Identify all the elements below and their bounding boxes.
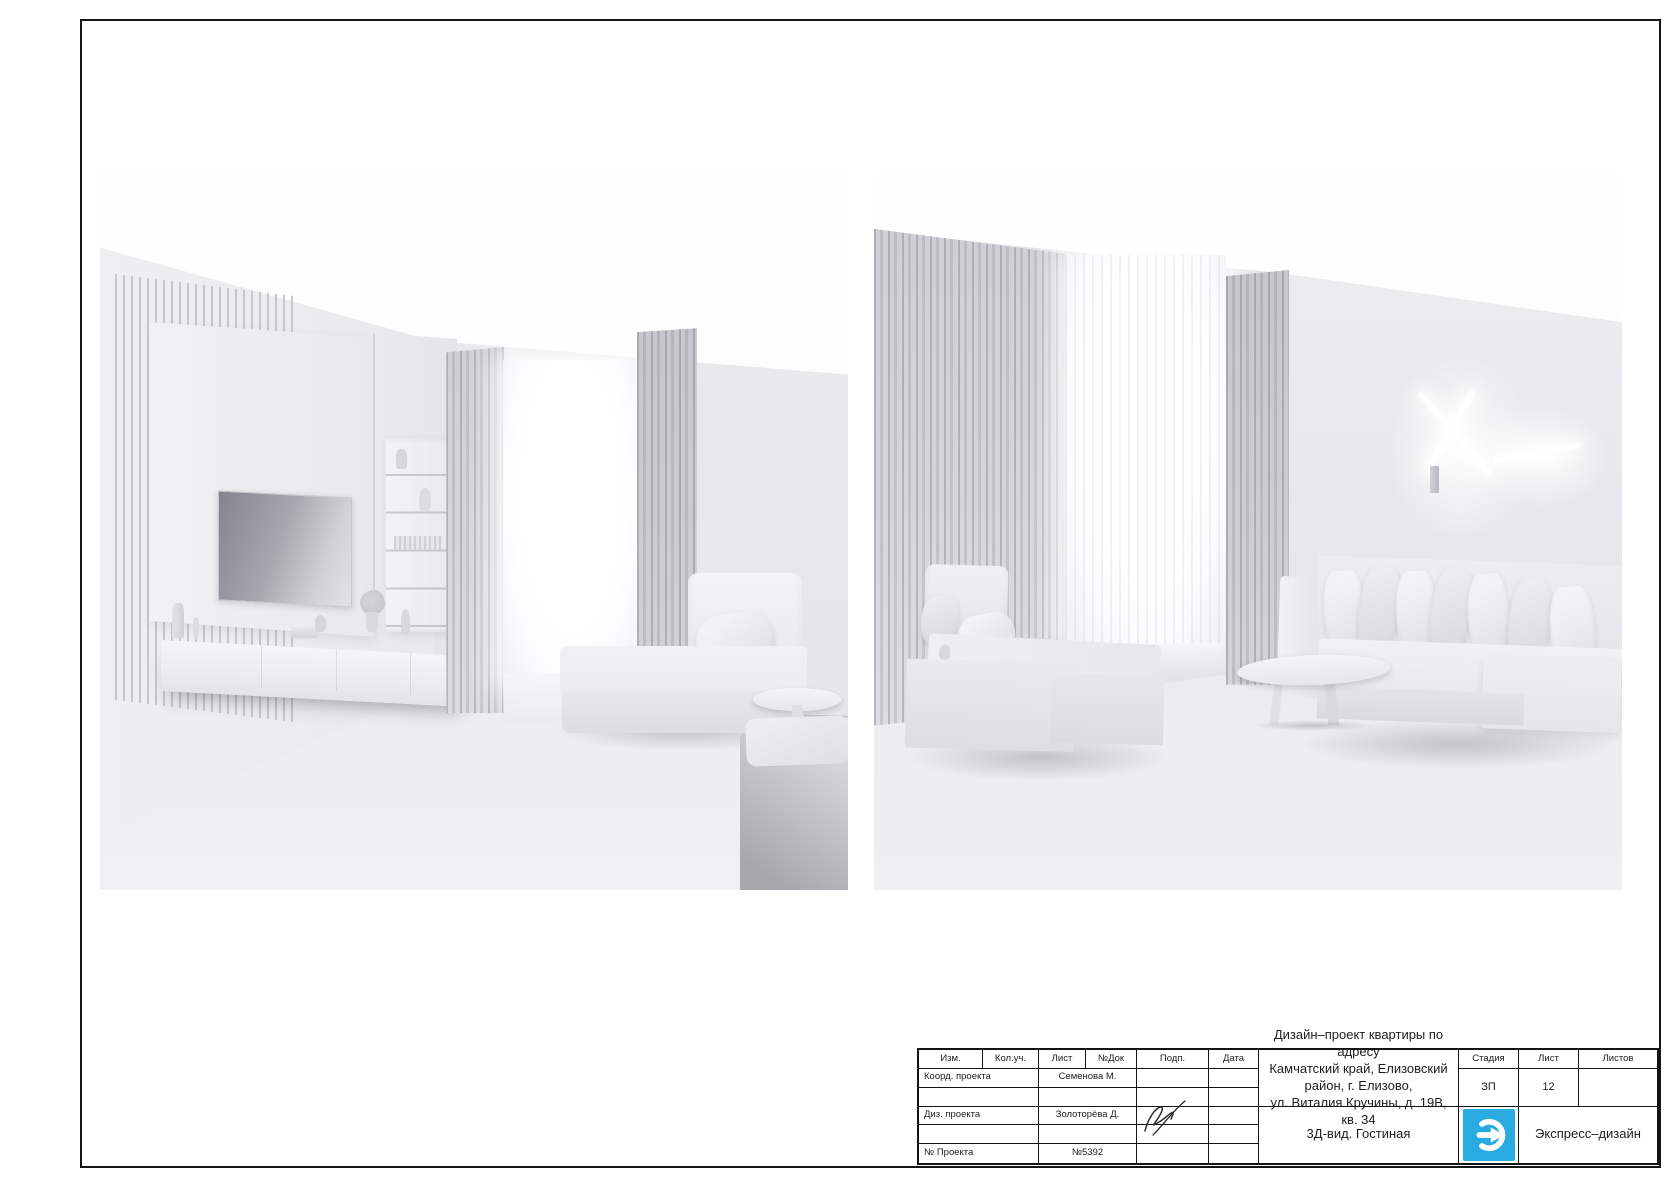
coffee-table-leg bbox=[1323, 680, 1338, 725]
decor-vase bbox=[172, 603, 184, 637]
empty-cell bbox=[1137, 1069, 1209, 1088]
shelf-vase bbox=[419, 488, 432, 510]
view-title: 3Д-вид. Гостиная bbox=[1259, 1107, 1459, 1164]
project-number-value: №5392 bbox=[1039, 1144, 1137, 1163]
empty-cell bbox=[1137, 1144, 1209, 1163]
coffee-table-leg bbox=[1269, 679, 1284, 725]
empty-cell bbox=[1209, 1144, 1259, 1163]
logo-cell bbox=[1459, 1107, 1519, 1164]
empty-cell bbox=[1209, 1069, 1259, 1088]
stage-value: ЗП bbox=[1459, 1069, 1519, 1107]
empty-cell bbox=[1039, 1125, 1137, 1144]
decor-books bbox=[291, 627, 318, 638]
role-label-coord: Коорд. проекта bbox=[919, 1069, 1039, 1088]
console-seam bbox=[261, 646, 262, 688]
decor-figurine bbox=[315, 615, 326, 632]
signature-cell bbox=[1137, 1107, 1209, 1126]
empty-cell bbox=[1209, 1125, 1259, 1144]
decor-candle bbox=[193, 617, 199, 639]
project-title-line2: Камчатский край, Елизовский район, г. Ел… bbox=[1261, 1061, 1456, 1095]
wall-light-bracket bbox=[1430, 466, 1439, 492]
sheet-value: 12 bbox=[1519, 1069, 1579, 1107]
shelf-vase bbox=[396, 449, 406, 468]
header-list: Лист bbox=[1039, 1050, 1086, 1069]
sheet-header: Лист bbox=[1519, 1050, 1579, 1069]
company-logo-icon bbox=[1467, 1113, 1511, 1157]
company-logo bbox=[1463, 1109, 1515, 1161]
chaise-lounge bbox=[901, 562, 1175, 763]
header-podp: Подп. bbox=[1137, 1050, 1209, 1069]
empty-cell bbox=[1209, 1088, 1259, 1107]
render-3d-right bbox=[874, 143, 1622, 890]
console-seam bbox=[336, 649, 337, 691]
project-title: Дизайн–проект квартиры по адресу Камчатс… bbox=[1259, 1050, 1459, 1107]
empty-cell bbox=[919, 1125, 1039, 1144]
header-ndok: №Док bbox=[1086, 1050, 1137, 1069]
decor-vase bbox=[366, 612, 378, 631]
coffee-table bbox=[1237, 655, 1390, 730]
render-3d-left bbox=[100, 143, 848, 890]
role-name-coord: Семенова М. bbox=[1039, 1069, 1137, 1088]
stage-header: Стадия bbox=[1459, 1050, 1519, 1069]
empty-cell bbox=[1209, 1107, 1259, 1126]
shelf-books bbox=[394, 536, 442, 549]
role-label-designer: Диз. проекта bbox=[919, 1107, 1039, 1126]
curtain-left bbox=[446, 347, 504, 713]
company-name: Экспресс–дизайн bbox=[1519, 1107, 1657, 1164]
empty-cell bbox=[1137, 1125, 1209, 1144]
decor-vase bbox=[401, 609, 411, 634]
header-izm: Изм. bbox=[919, 1050, 983, 1069]
coffee-table-shadow bbox=[1249, 720, 1378, 730]
sheets-value bbox=[1579, 1069, 1657, 1107]
title-block: Изм. Кол.уч. Лист №Док Подп. Дата Дизайн… bbox=[917, 1048, 1659, 1165]
empty-cell bbox=[919, 1088, 1039, 1107]
wall-light-glow bbox=[1469, 404, 1611, 509]
role-name-designer: Золоторёва Д. bbox=[1039, 1107, 1137, 1126]
chaise-decor-vase bbox=[939, 644, 950, 660]
header-koluch: Кол.уч. bbox=[983, 1050, 1039, 1069]
empty-cell bbox=[1039, 1088, 1137, 1107]
sheets-header: Листов bbox=[1579, 1050, 1657, 1069]
project-title-line1: Дизайн–проект квартиры по адресу bbox=[1261, 1027, 1456, 1061]
chaise-front-step bbox=[1050, 676, 1165, 745]
ottoman-cushion bbox=[745, 715, 848, 767]
coffee-table-top bbox=[1236, 652, 1390, 687]
header-data: Дата bbox=[1209, 1050, 1259, 1069]
tv-screen bbox=[218, 491, 352, 608]
ottoman bbox=[740, 733, 848, 890]
project-number-label: № Проекта bbox=[919, 1144, 1039, 1163]
